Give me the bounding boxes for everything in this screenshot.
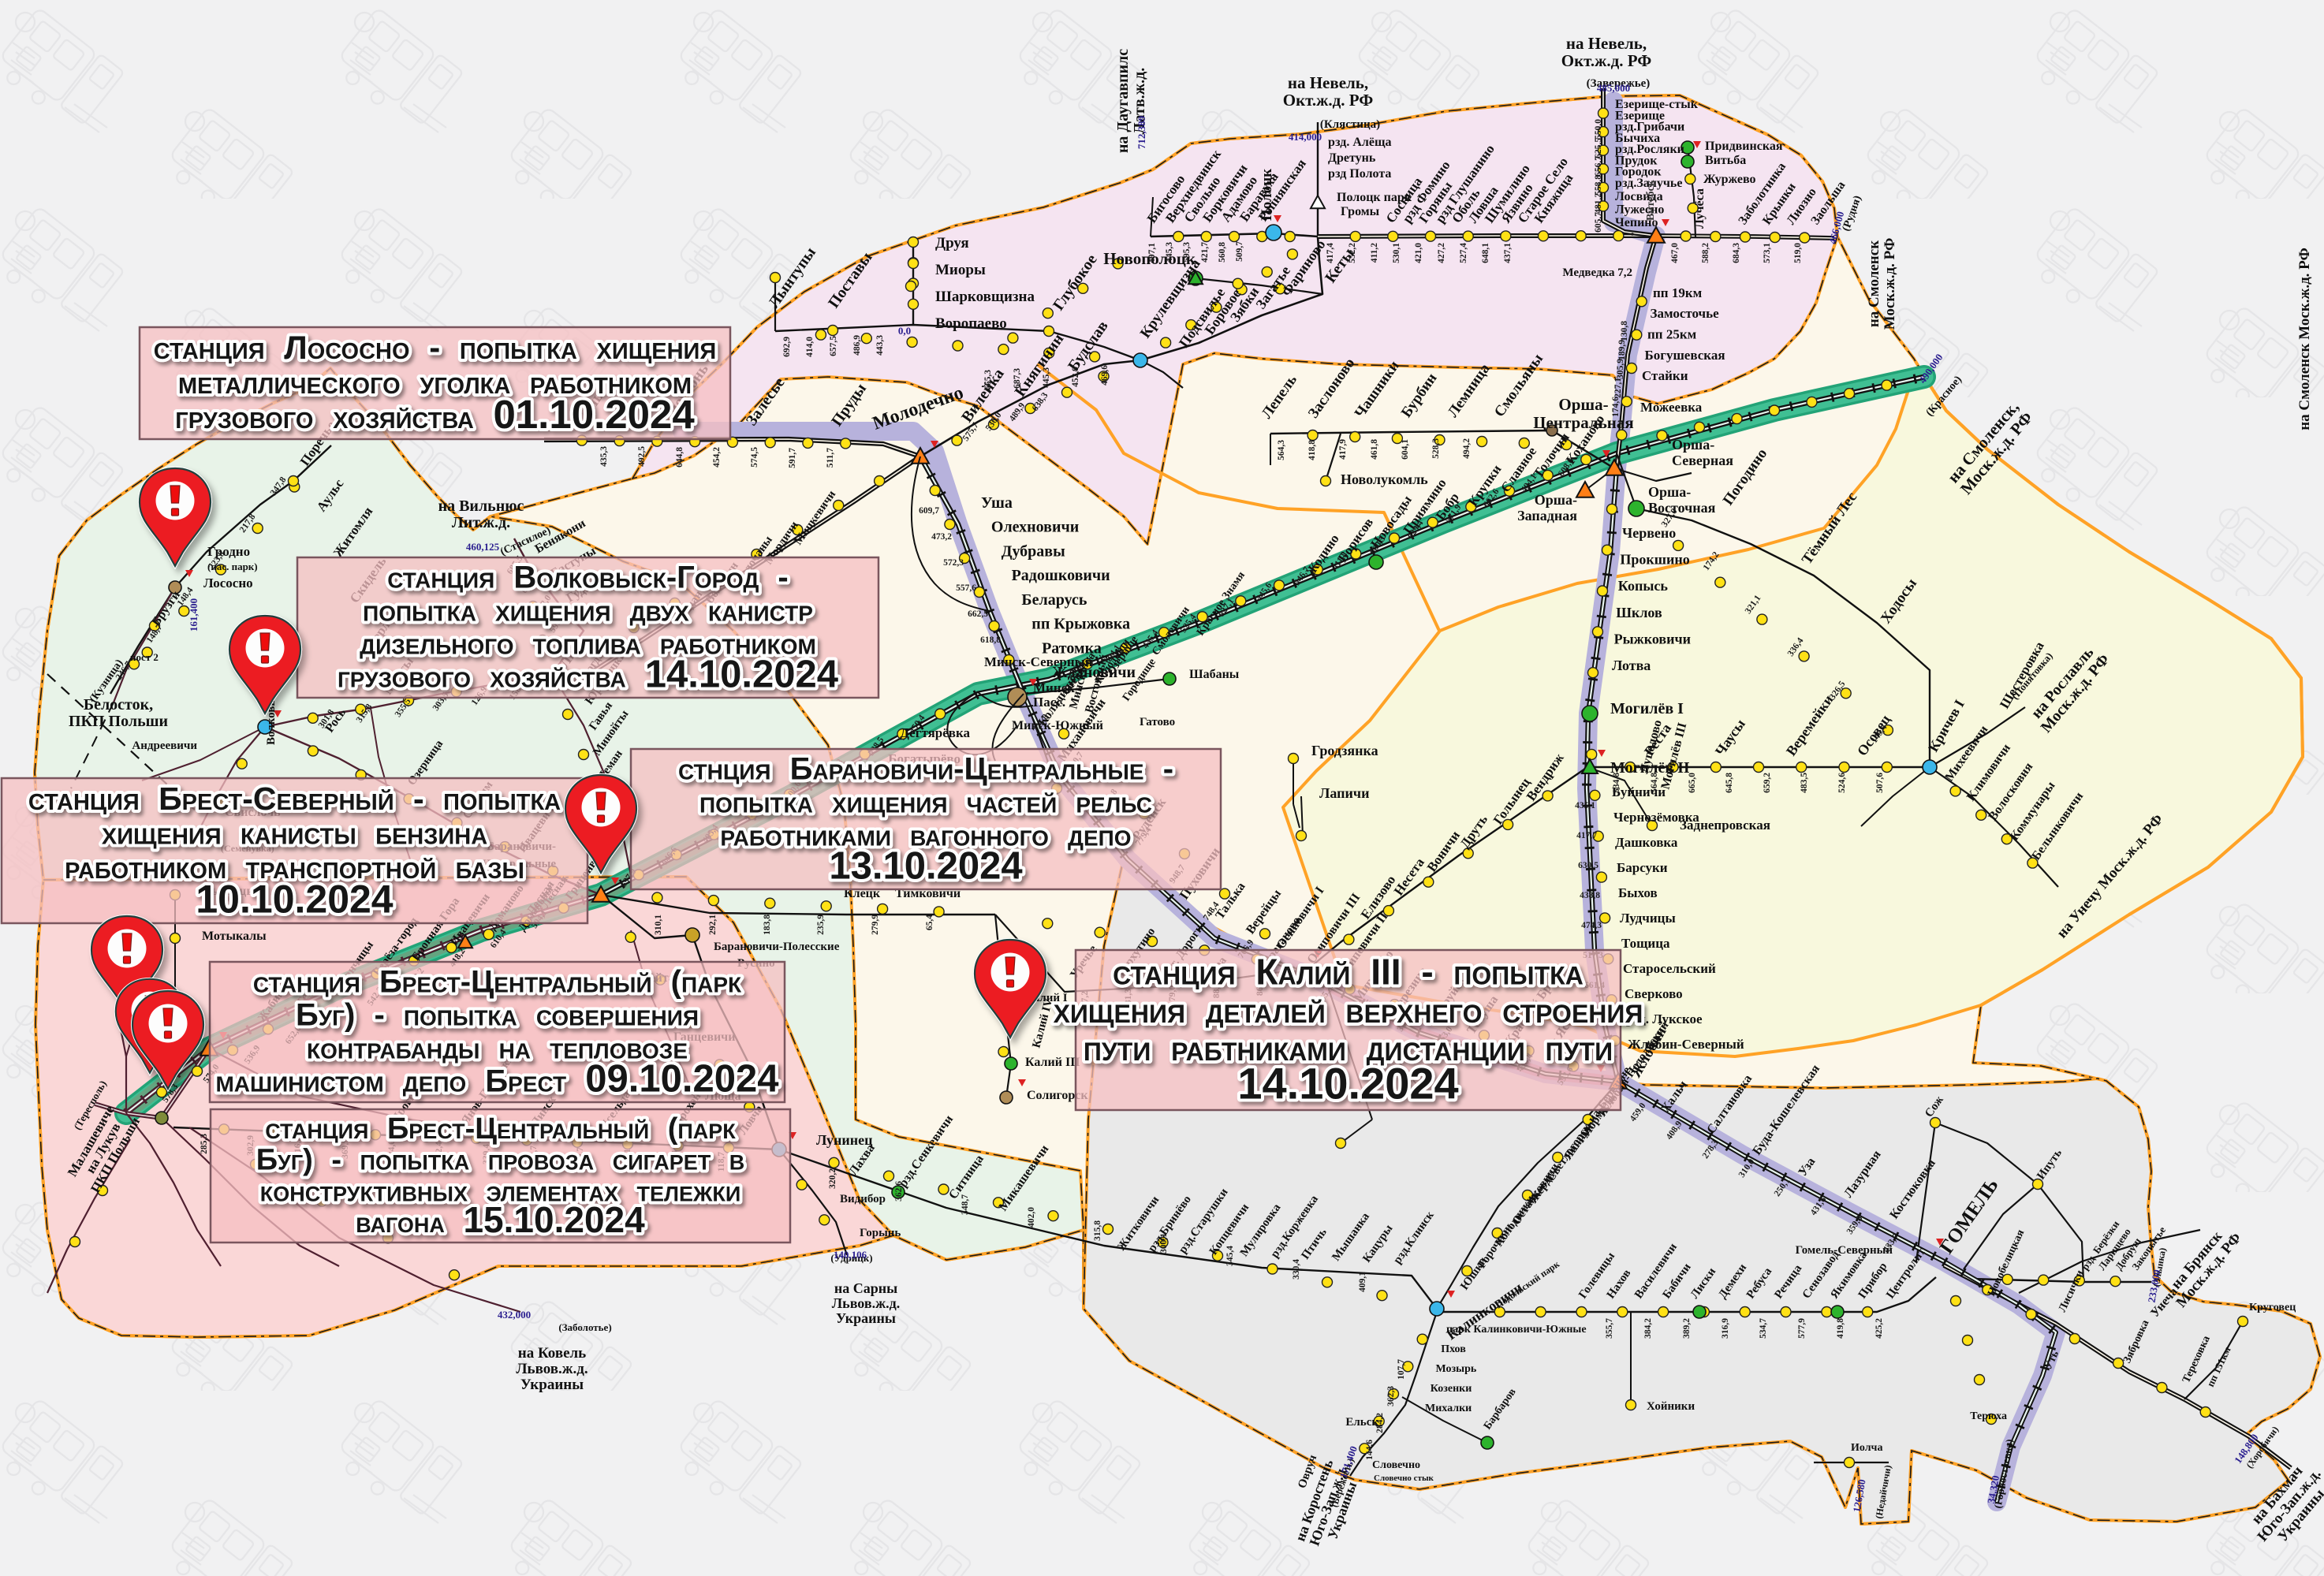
svg-text:435,3: 435,3 bbox=[599, 446, 609, 467]
svg-text:Гатово: Гатово bbox=[1140, 716, 1175, 728]
svg-text:Новолукомль: Новолукомль bbox=[1341, 471, 1428, 487]
svg-text:Радошковичи: Радошковичи bbox=[1012, 567, 1110, 584]
svg-text:Михалки: Михалки bbox=[1425, 1403, 1472, 1414]
svg-text:станция Лососно - попытка хище: станция Лососно - попытка хищения bbox=[154, 329, 716, 366]
svg-text:Гомель-Северный: Гомель-Северный bbox=[1796, 1244, 1893, 1257]
svg-text:454,2: 454,2 bbox=[712, 447, 722, 468]
svg-text:605,7: 605,7 bbox=[1594, 212, 1603, 233]
svg-text:(Клястица): (Клястица) bbox=[1320, 118, 1380, 131]
svg-text:Гродзянка: Гродзянка bbox=[1311, 743, 1378, 758]
svg-text:560,8: 560,8 bbox=[1218, 242, 1227, 263]
svg-text:645,8: 645,8 bbox=[1725, 773, 1734, 793]
svg-text:564,3: 564,3 bbox=[1277, 440, 1286, 460]
svg-text:460,125: 460,125 bbox=[466, 541, 500, 553]
svg-text:Ельск: Ельск bbox=[1345, 1416, 1378, 1429]
svg-text:421,7: 421,7 bbox=[1200, 242, 1210, 263]
svg-text:Орша-: Орша- bbox=[1558, 395, 1608, 414]
svg-text:665,3: 665,3 bbox=[983, 370, 993, 390]
svg-text:656,7: 656,7 bbox=[1594, 156, 1603, 177]
svg-text:418,8: 418,8 bbox=[1307, 440, 1317, 460]
svg-text:Андреевичи: Андреевичи bbox=[132, 740, 197, 752]
svg-text:657,5: 657,5 bbox=[829, 336, 838, 356]
svg-text:Витебск: Витебск bbox=[1645, 179, 1657, 221]
svg-text:421,0: 421,0 bbox=[1414, 243, 1423, 263]
svg-text:140,106: 140,106 bbox=[834, 1249, 867, 1261]
svg-text:Шклов: Шклов bbox=[1616, 605, 1662, 620]
svg-text:машинистом депо Брест 09.10.20: машинистом депо Брест 09.10.2024 bbox=[215, 1058, 778, 1101]
svg-text:Буг) - попытка совершения: Буг) - попытка совершения bbox=[296, 998, 699, 1033]
svg-text:на Смоленск Моск.ж.д. РФ: на Смоленск Моск.ж.д. РФ bbox=[2296, 248, 2313, 430]
svg-text:409,1: 409,1 bbox=[1358, 1272, 1367, 1292]
svg-text:Западная: Западная bbox=[1517, 508, 1577, 523]
svg-text:417,4: 417,4 bbox=[1326, 243, 1335, 263]
svg-text:435,1: 435,1 bbox=[1575, 801, 1595, 810]
svg-text:Терюха: Терюха bbox=[1970, 1410, 2007, 1422]
svg-text:573,1: 573,1 bbox=[1763, 243, 1772, 263]
svg-text:попытка хищения двух канистр: попытка хищения двух канистр bbox=[363, 594, 813, 628]
svg-text:564,8: 564,8 bbox=[1650, 773, 1659, 793]
svg-text:Видибор: Видибор bbox=[840, 1193, 886, 1205]
svg-text:Миоры: Миоры bbox=[935, 262, 986, 278]
svg-text:320,2: 320,2 bbox=[828, 1168, 837, 1189]
svg-text:389,2: 389,2 bbox=[1682, 1318, 1692, 1339]
svg-text:на СмоленскМоск.ж.д. РФ: на СмоленскМоск.ж.д. РФ bbox=[1866, 238, 1898, 330]
svg-text:попытка хищения частей рельс: попытка хищения частей рельс bbox=[699, 785, 1152, 820]
svg-text:Хойники: Хойники bbox=[1647, 1400, 1695, 1413]
svg-text:Орша-: Орша- bbox=[1535, 492, 1577, 508]
svg-text:Могилёв I: Могилёв I bbox=[1610, 700, 1684, 717]
svg-text:530,1: 530,1 bbox=[1392, 243, 1401, 263]
svg-text:473,2: 473,2 bbox=[931, 532, 952, 542]
svg-text:355,7: 355,7 bbox=[1605, 1318, 1614, 1339]
svg-text:Друя: Друя bbox=[935, 235, 969, 251]
svg-text:Минск-Южный: Минск-Южный bbox=[1012, 719, 1103, 732]
svg-text:310,1: 310,1 bbox=[654, 915, 663, 935]
svg-text:Лунинец: Лунинец bbox=[816, 1132, 873, 1148]
svg-text:Беларусь: Беларусь bbox=[1021, 591, 1087, 609]
svg-text:443,3: 443,3 bbox=[875, 335, 885, 356]
svg-text:Горынь: Горынь bbox=[860, 1227, 901, 1239]
svg-text:Иолча: Иолча bbox=[1851, 1442, 1882, 1454]
svg-text:пп Крыжовка: пп Крыжовка bbox=[1031, 616, 1130, 633]
svg-text:Дретунь: Дретунь bbox=[1328, 151, 1376, 165]
svg-text:Шабаны: Шабаны bbox=[1189, 668, 1240, 681]
svg-text:284,2: 284,2 bbox=[1375, 1413, 1385, 1433]
svg-text:Мозырь: Мозырь bbox=[1436, 1363, 1477, 1375]
svg-text:235,9: 235,9 bbox=[816, 915, 826, 935]
svg-text:474,3: 474,3 bbox=[1581, 921, 1602, 930]
svg-text:588,2: 588,2 bbox=[1701, 243, 1710, 263]
svg-text:362,3: 362,3 bbox=[1386, 1386, 1396, 1406]
svg-text:грузового хозяйства 01.10.2024: грузового хозяйства 01.10.2024 bbox=[175, 392, 695, 437]
svg-text:65,4: 65,4 bbox=[925, 915, 934, 930]
svg-text:на Невель,Окт.ж.д. РФ: на Невель,Окт.ж.д. РФ bbox=[1283, 73, 1374, 110]
svg-text:Лотва: Лотва bbox=[1612, 658, 1651, 673]
svg-text:Барановичи-Полесские: Барановичи-Полесские bbox=[714, 941, 840, 953]
svg-text:Козенки: Козенки bbox=[1431, 1383, 1472, 1395]
svg-text:509,7: 509,7 bbox=[1235, 241, 1244, 262]
svg-text:Рыжковичи: Рыжковичи bbox=[1614, 631, 1691, 646]
svg-text:Придвинская: Придвинская bbox=[1705, 140, 1783, 153]
svg-text:595,3: 595,3 bbox=[1182, 242, 1192, 263]
svg-text:130,8: 130,8 bbox=[1620, 321, 1629, 341]
svg-text:427,2: 427,2 bbox=[1437, 243, 1446, 263]
svg-text:Буг) - попытка провоза сигарет: Буг) - попытка провоза сигарет в bbox=[256, 1144, 745, 1177]
svg-text:445,3: 445,3 bbox=[1165, 242, 1174, 263]
svg-text:на КовельЛьвов.ж.д.Украины: на КовельЛьвов.ж.д.Украины bbox=[516, 1345, 588, 1393]
svg-text:419,8: 419,8 bbox=[1836, 1318, 1845, 1339]
svg-text:Олехновичи: Олехновичи bbox=[991, 519, 1079, 536]
svg-text:станция Брест-Центральный (пар: станция Брест-Центральный (парк bbox=[253, 965, 742, 1000]
svg-text:534,7: 534,7 bbox=[1759, 1318, 1768, 1339]
svg-text:438,8: 438,8 bbox=[1580, 891, 1600, 900]
svg-text:687,3: 687,3 bbox=[1013, 368, 1022, 389]
svg-text:414,000: 414,000 bbox=[1289, 131, 1322, 143]
svg-text:13.10.2024: 13.10.2024 bbox=[829, 845, 1022, 888]
svg-text:рзд Полота: рзд Полота bbox=[1328, 167, 1391, 181]
svg-text:Медведка 7,2: Медведка 7,2 bbox=[1562, 266, 1632, 279]
svg-text:Шарковщизна: Шарковщизна bbox=[935, 289, 1035, 305]
svg-text:486,9: 486,9 bbox=[852, 335, 862, 356]
svg-text:644,8: 644,8 bbox=[675, 447, 685, 468]
svg-text:Мотыкалы: Мотыкалы bbox=[202, 930, 267, 943]
svg-text:Восточная: Восточная bbox=[1648, 500, 1716, 516]
svg-text:292,1: 292,1 bbox=[708, 915, 718, 935]
svg-text:станция Калий III - попытка: станция Калий III - попытка bbox=[1113, 952, 1584, 993]
svg-text:574,5: 574,5 bbox=[750, 447, 759, 468]
svg-text:285,3: 285,3 bbox=[200, 1134, 209, 1154]
svg-text:519,0: 519,0 bbox=[1793, 243, 1803, 263]
svg-text:Богушевская: Богушевская bbox=[1645, 348, 1725, 363]
svg-text:Словечно: Словечно bbox=[1372, 1459, 1420, 1471]
svg-text:497,1: 497,1 bbox=[1147, 243, 1157, 263]
svg-text:Стайки: Стайки bbox=[1642, 368, 1688, 383]
svg-text:хищения канисты бензина: хищения канисты бензина bbox=[102, 814, 487, 851]
svg-text:507,6: 507,6 bbox=[1875, 773, 1885, 793]
svg-text:107,7: 107,7 bbox=[1397, 1359, 1406, 1380]
svg-text:рзд. Алёща: рзд. Алёща bbox=[1328, 136, 1391, 149]
svg-text:Журжево: Журжево bbox=[1703, 173, 1756, 186]
svg-text:Прокшино: Прокшино bbox=[1620, 552, 1689, 568]
svg-text:Замосточье: Замосточье bbox=[1651, 306, 1720, 321]
svg-text:604,1: 604,1 bbox=[1401, 439, 1410, 460]
svg-text:511,7: 511,7 bbox=[826, 448, 835, 468]
svg-text:467,0: 467,0 bbox=[1670, 243, 1680, 263]
svg-text:парк Калинковичи-Южные: парк Калинковичи-Южные bbox=[1446, 1324, 1587, 1336]
svg-text:Круговец: Круговец bbox=[2249, 1302, 2296, 1313]
svg-text:534,8: 534,8 bbox=[1612, 773, 1621, 793]
svg-text:362,6: 362,6 bbox=[894, 1181, 904, 1202]
svg-text:Барсуки: Барсуки bbox=[1617, 860, 1668, 875]
svg-text:Лудчицы: Лудчицы bbox=[1620, 911, 1676, 926]
svg-text:425,2: 425,2 bbox=[1874, 1318, 1884, 1339]
svg-text:591,7: 591,7 bbox=[788, 448, 797, 468]
svg-text:494,2: 494,2 bbox=[1462, 438, 1472, 459]
svg-text:(Заболотье): (Заболотье) bbox=[558, 1321, 611, 1333]
svg-text:Дашковка: Дашковка bbox=[1615, 835, 1678, 850]
svg-text:528,3: 528,3 bbox=[1431, 438, 1441, 459]
svg-text:417,9: 417,9 bbox=[1338, 439, 1348, 460]
svg-text:Копысь: Копысь bbox=[1618, 578, 1669, 594]
svg-text:692,9: 692,9 bbox=[782, 337, 792, 357]
svg-text:485,000: 485,000 bbox=[1597, 82, 1630, 94]
svg-text:550,0: 550,0 bbox=[1594, 119, 1603, 140]
svg-text:558,8: 558,8 bbox=[1594, 175, 1603, 196]
svg-text:пп 25км: пп 25км bbox=[1647, 327, 1697, 342]
svg-text:437,1: 437,1 bbox=[1503, 243, 1513, 263]
svg-text:Громы: Громы bbox=[1341, 205, 1380, 218]
svg-text:Дубравы: Дубравы bbox=[1002, 542, 1065, 560]
svg-text:Лососно: Лососно bbox=[203, 576, 253, 591]
svg-text:10.10.2024: 10.10.2024 bbox=[196, 877, 393, 921]
svg-text:315,8: 315,8 bbox=[1093, 1220, 1102, 1241]
svg-text:712,389: 712,389 bbox=[1136, 115, 1147, 149]
svg-text:Лапичи: Лапичи bbox=[1319, 785, 1369, 801]
svg-text:174,6: 174,6 bbox=[1611, 397, 1621, 417]
svg-text:Полоцк: Полоцк bbox=[1259, 169, 1275, 221]
svg-text:411,2: 411,2 bbox=[1370, 243, 1379, 263]
svg-text:Старосельский: Старосельский bbox=[1623, 961, 1716, 976]
svg-text:стнция Барановичи-Центральные: стнция Барановичи-Центральные - bbox=[678, 752, 1173, 787]
svg-text:300,1: 300,1 bbox=[1159, 1233, 1169, 1254]
svg-text:Уша: Уша bbox=[981, 494, 1013, 512]
svg-text:402,0: 402,0 bbox=[1027, 1207, 1036, 1228]
svg-text:Словечно стык: Словечно стык bbox=[1374, 1474, 1434, 1483]
svg-text:Пасс.: Пасс. bbox=[1033, 695, 1065, 710]
svg-text:грузового хозяйства 14.10.2024: грузового хозяйства 14.10.2024 bbox=[338, 654, 838, 696]
svg-text:345,4: 345,4 bbox=[1225, 1246, 1235, 1266]
svg-text:Быхов: Быхов bbox=[1618, 885, 1658, 900]
svg-text:на Невель,Окт.ж.д. РФ: на Невель,Окт.ж.д. РФ bbox=[1561, 34, 1652, 70]
svg-text:524,6: 524,6 bbox=[1837, 773, 1847, 793]
svg-text:станция Брест-Центральный (пар: станция Брест-Центральный (парк bbox=[265, 1112, 736, 1146]
svg-text:684,3: 684,3 bbox=[1732, 243, 1741, 263]
svg-text:Витьба: Витьба bbox=[1705, 154, 1746, 167]
svg-text:481,2: 481,2 bbox=[1594, 193, 1603, 214]
svg-text:552,2: 552,2 bbox=[1348, 243, 1357, 263]
svg-text:станция Волковыск-Город -: станция Волковыск-Город - bbox=[387, 561, 788, 595]
svg-text:618,8: 618,8 bbox=[980, 635, 1001, 645]
svg-text:хищения деталей верхнего строе: хищения деталей верхнего строения bbox=[1054, 989, 1643, 1030]
svg-text:625,5: 625,5 bbox=[1594, 138, 1603, 158]
svg-text:348,7: 348,7 bbox=[961, 1194, 970, 1215]
svg-text:452,9: 452,9 bbox=[1071, 367, 1080, 387]
svg-text:Калий III: Калий III bbox=[1025, 1056, 1080, 1069]
svg-text:665,0: 665,0 bbox=[1688, 773, 1697, 793]
svg-text:648,1: 648,1 bbox=[1481, 243, 1490, 263]
svg-text:0,0: 0,0 bbox=[898, 325, 911, 337]
svg-text:227,1: 227,1 bbox=[1613, 378, 1623, 398]
svg-text:305,9: 305,9 bbox=[1616, 359, 1625, 379]
svg-text:572,3: 572,3 bbox=[943, 558, 964, 568]
svg-text:414,0: 414,0 bbox=[805, 337, 815, 357]
svg-text:630,5: 630,5 bbox=[1578, 861, 1598, 870]
svg-text:станция Брест-Северный - попыт: станция Брест-Северный - попытка bbox=[28, 781, 561, 817]
svg-text:659,2: 659,2 bbox=[1763, 773, 1772, 793]
svg-text:Северная: Северная bbox=[1672, 453, 1733, 468]
svg-text:432,000: 432,000 bbox=[498, 1309, 531, 1321]
svg-text:417,7: 417,7 bbox=[1576, 831, 1597, 840]
svg-text:527,4: 527,4 bbox=[1459, 243, 1468, 263]
svg-text:на СарныЛьвов.ж.д.Украины: на СарныЛьвов.ж.д.Украины bbox=[832, 1280, 900, 1326]
svg-text:Воропаево: Воропаево bbox=[935, 315, 1007, 332]
svg-text:пост 2: пост 2 bbox=[130, 651, 159, 663]
svg-text:445,3: 445,3 bbox=[1042, 367, 1051, 388]
svg-text:577,9: 577,9 bbox=[1797, 1318, 1807, 1339]
svg-text:144,6: 144,6 bbox=[1365, 1440, 1375, 1460]
svg-text:461,8: 461,8 bbox=[1370, 439, 1379, 460]
svg-text:384,2: 384,2 bbox=[1643, 1318, 1653, 1339]
svg-text:Заднепровская: Заднепровская bbox=[1680, 818, 1770, 833]
svg-text:492,5: 492,5 bbox=[637, 446, 647, 467]
svg-text:557,6: 557,6 bbox=[956, 583, 976, 593]
svg-text:Можеевка: Можеевка bbox=[1640, 400, 1703, 415]
svg-text:161,400: 161,400 bbox=[188, 598, 200, 632]
svg-text:пп 19км: пп 19км bbox=[1653, 285, 1703, 300]
svg-text:183,8: 183,8 bbox=[763, 915, 772, 935]
svg-text:330,4: 330,4 bbox=[1292, 1259, 1301, 1280]
svg-text:Лучёса: Лучёса bbox=[1693, 188, 1707, 229]
svg-text:189,9: 189,9 bbox=[1617, 340, 1627, 360]
svg-text:Пхов: Пхов bbox=[1441, 1343, 1466, 1355]
svg-text:Орша-: Орша- bbox=[1648, 484, 1691, 500]
svg-text:Тощица: Тощица bbox=[1621, 936, 1670, 951]
svg-text:609,7: 609,7 bbox=[919, 506, 939, 516]
svg-text:483,5: 483,5 bbox=[1800, 773, 1809, 793]
svg-text:Орша-: Орша- bbox=[1672, 437, 1714, 453]
svg-text:279,9: 279,9 bbox=[871, 915, 880, 935]
svg-text:316,9: 316,9 bbox=[1721, 1318, 1730, 1339]
svg-text:14.10.2024: 14.10.2024 bbox=[1237, 1058, 1458, 1108]
svg-text:469,6: 469,6 bbox=[1100, 365, 1110, 386]
